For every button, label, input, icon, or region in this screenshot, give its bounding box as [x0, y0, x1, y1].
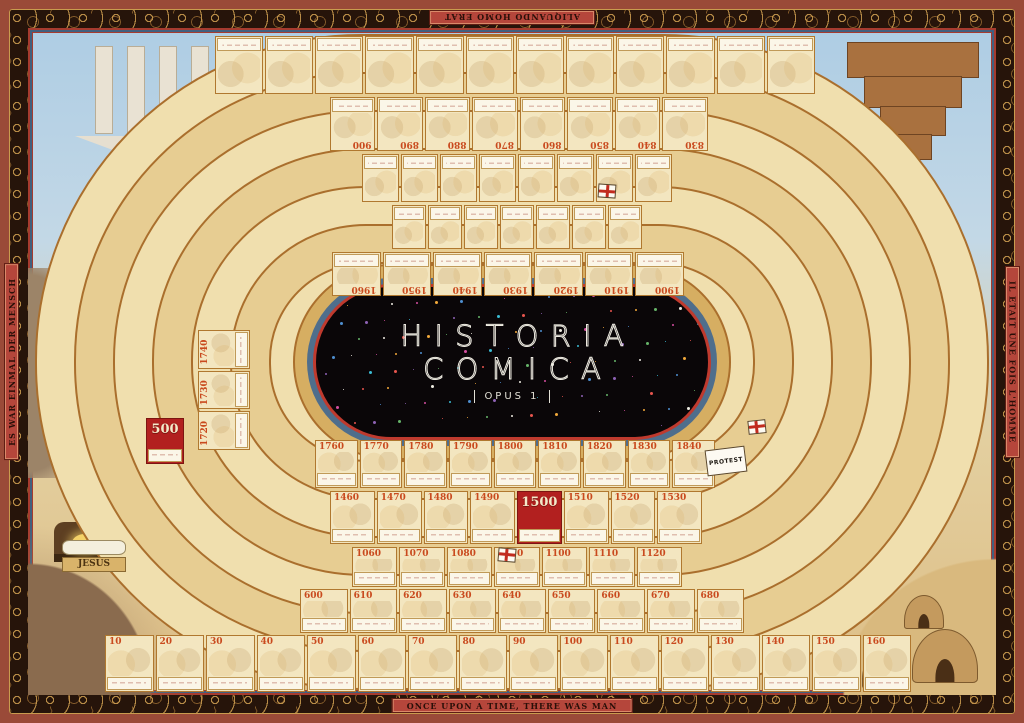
cell-year: 1070 [400, 548, 443, 559]
timeline-cell [466, 36, 514, 94]
cell-illustration [588, 268, 631, 284]
cell-year [402, 200, 437, 201]
cell-illustration [159, 647, 202, 676]
cell-caption [406, 473, 445, 486]
cell-year: 60 [359, 636, 406, 647]
st-george-cross-flag [598, 183, 617, 198]
mud-hut [904, 595, 944, 629]
cell-caption [451, 618, 495, 631]
cell-year [501, 247, 533, 248]
timeline-cell [215, 36, 263, 94]
star-dot [336, 406, 339, 409]
star-dot [606, 394, 608, 396]
motto-banner-french: IL ETAIT UNE FOIS L'HOMME [1005, 266, 1020, 458]
cell-year: 50 [308, 636, 355, 647]
cell-caption [235, 413, 248, 448]
timeline-column-eighteenth-century-left: 172017301740 [198, 330, 250, 450]
cell-illustration [303, 601, 345, 617]
star-dot [665, 341, 666, 342]
cell-illustration [563, 647, 606, 676]
cell-year [636, 200, 671, 201]
cell-illustration [618, 113, 658, 139]
cell-caption [538, 207, 568, 220]
cell-year: 1110 [590, 548, 633, 559]
motto-german-text: ES WAR EINMAL DER MENSCH [7, 278, 17, 446]
timeline-cell [518, 154, 555, 202]
cell-caption [550, 618, 594, 631]
timeline-cell: 10 [105, 635, 154, 692]
star-dot [581, 395, 583, 397]
cell-illustration [497, 452, 534, 472]
cell-illustration [469, 52, 511, 92]
timeline-cell: 850 [568, 97, 614, 151]
cell-illustration [512, 647, 555, 676]
timeline-cell: 1740 [198, 330, 250, 369]
star-dot [497, 315, 500, 318]
timeline-cell [566, 36, 614, 94]
timeline-cell: 1470 [377, 491, 422, 544]
timeline-cell: 610 [350, 589, 398, 633]
cell-illustration [619, 52, 661, 92]
protest-banner: PROTEST [705, 446, 748, 477]
cell-caption [107, 677, 152, 690]
star-dot [442, 418, 443, 419]
cell-year [517, 92, 563, 93]
timeline-cell: 1080 [447, 547, 492, 587]
cell-year: 1740 [199, 331, 210, 368]
cell-year: 1470 [378, 492, 421, 503]
cell-caption [403, 156, 436, 169]
cell-illustration [631, 452, 668, 472]
cell-year: 1520 [612, 492, 655, 503]
cell-caption [360, 677, 405, 690]
timeline-cell: 830 [663, 97, 709, 151]
cell-year: 150 [813, 636, 860, 647]
timeline-cell: 1110 [589, 547, 634, 587]
cell-illustration [537, 268, 580, 284]
cell-year [573, 247, 605, 248]
timeline-cell: 1940 [433, 252, 482, 296]
cell-year: 1800 [495, 441, 536, 452]
star-dot [424, 402, 426, 404]
cell-caption [536, 254, 581, 267]
cell-caption [540, 473, 579, 486]
cell-year: 870 [474, 139, 518, 150]
timeline-row-ninth-century-inverted: 830840850860870880890900 [330, 97, 708, 151]
star-dot [635, 309, 637, 311]
cell-caption [362, 473, 401, 486]
cell-illustration [700, 601, 742, 617]
timeline-cell: 140 [762, 635, 811, 692]
cell-year: 900 [331, 139, 375, 150]
star-dot [380, 404, 381, 405]
star-dot [504, 298, 505, 299]
cell-year: 1460 [331, 492, 374, 503]
cell-illustration [209, 647, 252, 676]
cell-year: 1530 [658, 492, 701, 503]
cell-caption [659, 529, 700, 542]
cell-year [617, 92, 663, 93]
cell-year [667, 92, 713, 93]
cell-caption [401, 618, 445, 631]
poster-subtitle: OPUS 1 [474, 390, 549, 403]
star-dot [387, 387, 389, 389]
cell-illustration [539, 221, 567, 247]
cell-illustration [541, 452, 578, 472]
timeline-cell: 1830 [628, 440, 671, 488]
timeline-cell [464, 205, 498, 249]
cell-year: 1080 [448, 548, 491, 559]
cell-illustration [592, 559, 631, 571]
star-dot [365, 321, 368, 324]
cell-caption [426, 529, 467, 542]
cell-illustration [666, 113, 706, 139]
timeline-row-inverted [362, 154, 672, 202]
cell-year: 80 [460, 636, 507, 647]
star-dot [354, 422, 356, 424]
cell-year: 1060 [353, 548, 396, 559]
star-dot [347, 305, 348, 306]
cell-caption [511, 677, 556, 690]
star-dot [376, 354, 377, 355]
cell-year: 640 [499, 590, 545, 601]
cell-year [393, 247, 425, 248]
cell-illustration [586, 452, 623, 472]
motto-french-text: IL ETAIT UNE FOIS L'HOMME [1008, 281, 1018, 443]
cell-year: 660 [598, 590, 644, 601]
cell-illustration [318, 452, 355, 472]
cell-illustration [318, 52, 360, 92]
cell-caption [309, 677, 354, 690]
cell-year [266, 92, 312, 93]
cell-year [768, 92, 814, 93]
cell-illustration [462, 647, 505, 676]
cell-illustration [476, 113, 516, 139]
timeline-cell: 1910 [585, 252, 634, 296]
timeline-cell: 1790 [449, 440, 492, 488]
timeline-cell [315, 36, 363, 94]
timeline-cell: 20 [156, 635, 205, 692]
timeline-cell: 1920 [534, 252, 583, 296]
cell-illustration [614, 503, 653, 528]
timeline-cell: 1120 [637, 547, 682, 587]
cell-caption [267, 38, 311, 51]
st-george-cross-flag [497, 547, 516, 563]
timeline-row-sixteenth-century: 14601470148014901500151015201530 [330, 491, 702, 544]
cell-caption [385, 254, 430, 267]
cell-illustration [402, 559, 441, 571]
cell-year: 610 [351, 590, 397, 601]
timeline-row-nineteenth-century: 176017701780179018001810182018301840 [315, 440, 715, 488]
star-dot [340, 322, 343, 325]
timeline-cell [440, 154, 477, 202]
cell-illustration [611, 221, 639, 247]
star-dot [676, 374, 678, 376]
cell-year [366, 92, 412, 93]
timeline-cell: 1070 [399, 547, 444, 587]
cell-illustration [431, 221, 459, 247]
timeline-cell [516, 36, 564, 94]
timeline-cell [416, 36, 464, 94]
star-dot [416, 302, 418, 304]
cell-caption [481, 156, 514, 169]
cell-caption [496, 572, 537, 585]
cell-caption [568, 38, 612, 51]
scroll-banner [62, 540, 126, 555]
timeline-cell: 120 [661, 635, 710, 692]
cell-year: 650 [549, 590, 595, 601]
cell-caption [562, 677, 607, 690]
timeline-cell: 1720 [198, 411, 250, 450]
timeline-cell: 880 [425, 97, 471, 151]
timeline-cell: 860 [520, 97, 566, 151]
cell-caption [637, 156, 670, 169]
cell-illustration [452, 452, 489, 472]
timeline-cell [500, 205, 534, 249]
cell-caption [380, 99, 422, 112]
timeline-cell [479, 154, 516, 202]
cell-illustration [660, 503, 699, 528]
cell-illustration [520, 508, 559, 528]
cell-caption [394, 207, 424, 220]
cell-caption [148, 449, 182, 462]
star-dot [373, 421, 376, 424]
cell-year: 620 [400, 590, 446, 601]
cell-caption [591, 572, 632, 585]
star-dot [530, 414, 533, 417]
cell-year: 1820 [584, 441, 625, 452]
cell-caption [217, 38, 261, 51]
star-dot [661, 425, 662, 426]
cell-caption [599, 618, 643, 631]
timeline-cell: 1510 [564, 491, 609, 544]
cell-illustration [866, 647, 909, 676]
cell-caption [332, 99, 374, 112]
cell-caption [468, 38, 512, 51]
cell-year: 1900 [636, 284, 683, 295]
cell-year: 830 [664, 139, 708, 150]
cell-caption [613, 529, 654, 542]
cell-year: 1490 [471, 492, 514, 503]
star-dot [694, 390, 695, 391]
star-dot [650, 392, 653, 395]
cell-year: 600 [301, 590, 347, 601]
timeline-cell [365, 36, 413, 94]
star-dot [697, 323, 699, 325]
cell-caption [317, 473, 356, 486]
cell-illustration [545, 559, 584, 571]
timeline-cell: 620 [399, 589, 447, 633]
timeline-cell: 900 [330, 97, 376, 151]
cell-year [609, 247, 641, 248]
timeline-cell [392, 205, 426, 249]
cell-year [216, 92, 262, 93]
timeline-cell: 1900 [635, 252, 684, 296]
cell-caption [544, 572, 585, 585]
cell-caption [364, 156, 397, 169]
timeline-cell: 650 [548, 589, 596, 633]
cell-illustration [402, 601, 444, 617]
motto-banner-english: ONCE UPON A TIME, THERE WAS MAN [392, 698, 633, 713]
star-dot [362, 388, 364, 390]
timeline-cell: 1060 [352, 547, 397, 587]
cell-illustration [650, 601, 692, 617]
cell-illustration [575, 221, 603, 247]
cell-year: 1910 [586, 284, 633, 295]
cell-caption [665, 99, 707, 112]
cell-caption [235, 332, 248, 367]
timeline-cell: 40 [257, 635, 306, 692]
timeline-cell: 890 [378, 97, 424, 151]
cell-caption [570, 99, 612, 112]
cell-illustration [368, 52, 410, 92]
star-dot [522, 314, 525, 317]
motto-english-text: ONCE UPON A TIME, THERE WAS MAN [407, 701, 618, 711]
cell-caption [502, 207, 532, 220]
starfield-center-oval: HISTORIA COMICA OPUS 1 [313, 284, 711, 440]
timeline-cell [635, 154, 672, 202]
century-medallion: 1500 [517, 491, 562, 544]
cell-illustration [395, 221, 423, 247]
hut-door [935, 659, 954, 682]
timeline-cell [428, 205, 462, 249]
cell-caption [637, 254, 682, 267]
cell-caption [522, 99, 564, 112]
timeline-cell: 150 [812, 635, 861, 692]
cell-year: 630 [450, 590, 496, 601]
protest-text: PROTEST [709, 455, 744, 466]
cell-caption [713, 677, 758, 690]
cell-illustration [519, 52, 561, 92]
star-dot [398, 420, 401, 423]
cell-illustration [600, 601, 642, 617]
cell-caption [699, 618, 743, 631]
timeline-cell: 640 [498, 589, 546, 633]
cell-illustration [503, 221, 531, 247]
cell-year [597, 200, 632, 201]
cell-illustration [638, 170, 669, 200]
cell-caption [302, 618, 346, 631]
timeline-cell [536, 205, 570, 249]
cell-illustration [427, 503, 466, 528]
cell-year: 1830 [629, 441, 670, 452]
cell-illustration [404, 170, 435, 200]
star-dot [632, 376, 633, 377]
cell-caption [418, 38, 462, 51]
star-dot [468, 400, 471, 403]
cell-year: 1920 [535, 284, 582, 295]
cell-year: 1120 [638, 548, 681, 559]
timeline-cell: 630 [449, 589, 497, 633]
cell-illustration [268, 52, 310, 92]
cell-illustration [380, 503, 419, 528]
cell-illustration [260, 647, 303, 676]
timeline-cell: 660 [597, 589, 645, 633]
cell-caption [618, 38, 662, 51]
cell-year: 140 [763, 636, 810, 647]
cell-illustration [638, 268, 681, 284]
cell-year: 100 [561, 636, 608, 647]
star-dot [613, 377, 616, 380]
cell-illustration [361, 647, 404, 676]
timeline-cell [717, 36, 765, 94]
timeline-cell: 1730 [198, 371, 250, 410]
medallion-year: 500 [147, 419, 183, 435]
star-dot [449, 401, 451, 403]
timeline-cell: 1480 [424, 491, 469, 544]
cell-year: 160 [864, 636, 911, 647]
cell-illustration [467, 221, 495, 247]
cell-year: 1720 [199, 412, 210, 449]
ziggurat-tier [865, 76, 963, 108]
cell-illustration [560, 170, 591, 200]
cell-caption [566, 529, 607, 542]
timeline-cell: 1100 [542, 547, 587, 587]
jesus-era-marker: JESUS [62, 540, 126, 572]
cell-year: 40 [258, 636, 305, 647]
cell-caption [367, 38, 411, 51]
cell-caption [769, 38, 813, 51]
cell-caption [649, 618, 693, 631]
timeline-row-inverted [392, 205, 642, 249]
timeline-cell: 1460 [330, 491, 375, 544]
cell-illustration [664, 647, 707, 676]
cell-year [316, 92, 362, 93]
timeline-cell: 680 [697, 589, 745, 633]
cell-illustration [669, 52, 711, 92]
cell-caption [639, 572, 680, 585]
ziggurat-tier [848, 42, 980, 78]
cell-caption [486, 254, 531, 267]
cell-year: 130 [712, 636, 759, 647]
cell-illustration [569, 52, 611, 92]
cell-illustration [386, 268, 429, 284]
cell-illustration [815, 647, 858, 676]
cell-caption [449, 572, 490, 585]
hut-door [918, 614, 929, 628]
motto-banner-latin: ALIQUANDO HOMO ERAT [429, 10, 595, 25]
timeline-cell: 50 [307, 635, 356, 692]
cell-year: 860 [521, 139, 565, 150]
cell-caption [410, 677, 455, 690]
cell-illustration [108, 647, 151, 676]
cell-year: 1480 [425, 492, 468, 503]
timeline-cell: 1780 [404, 440, 447, 488]
cell-year [465, 247, 497, 248]
cell-illustration [521, 170, 552, 200]
cell-illustration [310, 647, 353, 676]
cell-caption [235, 373, 248, 408]
cell-year: 1500 [518, 492, 561, 508]
cell-illustration [335, 268, 378, 284]
star-dot [325, 373, 327, 375]
cell-caption [475, 99, 517, 112]
timeline-cell: 90 [509, 635, 558, 692]
star-dot [679, 307, 682, 310]
timeline-cell [767, 36, 815, 94]
timeline-row-top-outer-inverted [215, 36, 815, 94]
timeline-cell [362, 154, 399, 202]
cell-caption [435, 254, 480, 267]
star-dot [672, 324, 674, 326]
cell-caption [354, 572, 395, 585]
cell-illustration [613, 647, 656, 676]
cell-year: 10 [106, 636, 153, 647]
cell-illustration [428, 113, 468, 139]
jesus-plaque-text: JESUS [62, 557, 126, 572]
star-dot [624, 410, 625, 411]
cell-illustration [571, 113, 611, 139]
